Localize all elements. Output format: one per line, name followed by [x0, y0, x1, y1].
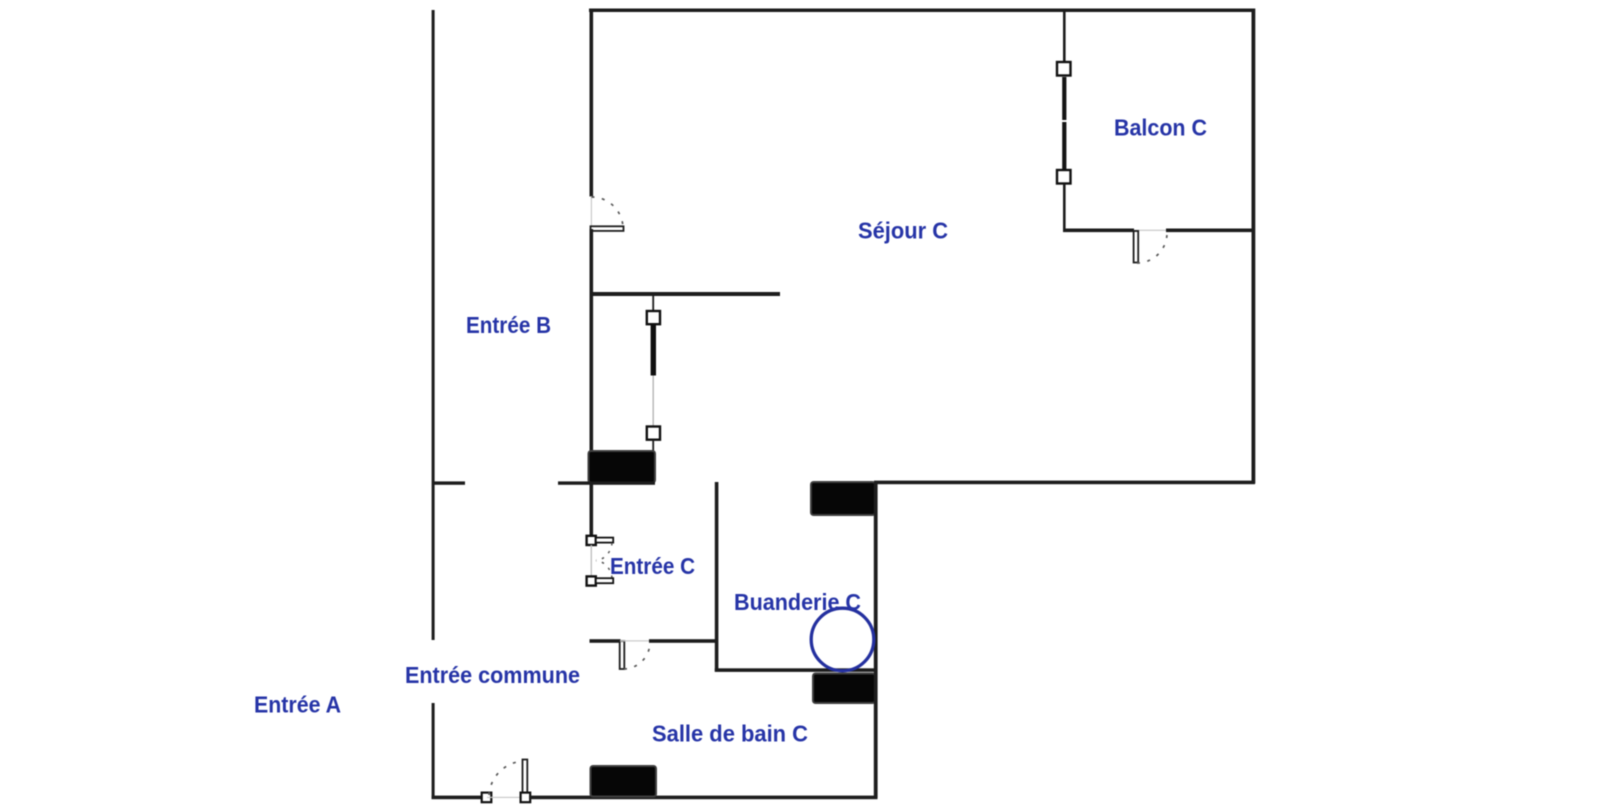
- svg-text:Balcon C: Balcon C: [1114, 115, 1207, 141]
- svg-text:Entrée B: Entrée B: [466, 312, 551, 338]
- svg-text:Salle de bain C: Salle de bain C: [652, 721, 808, 747]
- svg-text:Entrée commune: Entrée commune: [405, 662, 580, 688]
- svg-text:Entrée A: Entrée A: [254, 692, 341, 718]
- svg-text:Entrée C: Entrée C: [610, 553, 695, 579]
- svg-text:Séjour C: Séjour C: [858, 218, 948, 244]
- svg-text:Buanderie C: Buanderie C: [734, 589, 861, 615]
